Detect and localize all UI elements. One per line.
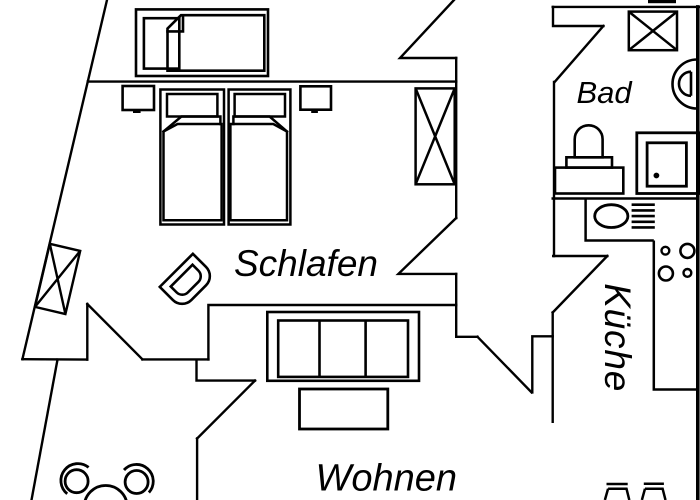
svg-text:Küche: Küche: [597, 283, 638, 392]
svg-text:Wohnen: Wohnen: [316, 458, 458, 500]
svg-text:Bad: Bad: [577, 75, 634, 110]
svg-text:Schlafen: Schlafen: [234, 243, 378, 284]
